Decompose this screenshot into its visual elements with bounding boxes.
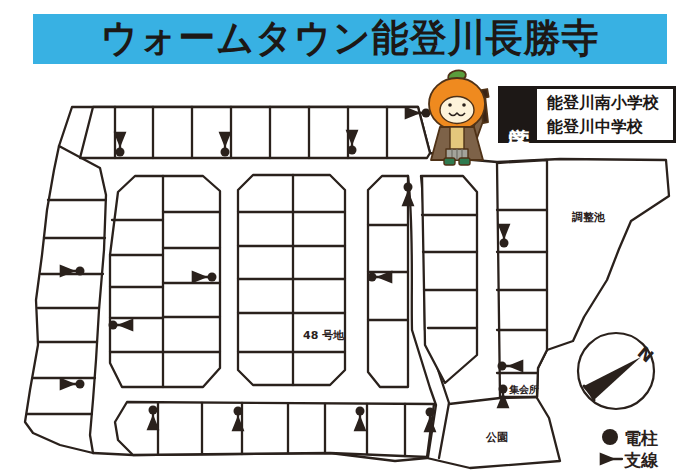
school-district-badge: 学区 [501,89,537,140]
lot-block-c-right [422,176,477,383]
school-district-label: 学区 [505,112,533,118]
elementary-school-name: 能登川南小学校 [547,91,673,115]
pole-legend-label: 電柱 [624,428,658,448]
mascot [429,69,489,165]
top-lot-strip [80,107,430,158]
compass: N [578,333,657,409]
utility-pole-icon [62,380,85,389]
bottom-lot-strip [115,402,434,457]
park-label: 公園 [485,431,508,444]
lot-block-b [238,175,345,385]
mascot-boot-icon [459,158,470,165]
pole-legend-icon [602,429,618,445]
mascot-boot-icon [444,158,455,165]
map-legend: 電柱 支線 [602,428,659,470]
right-lot-strip [497,160,547,397]
mascot-shirt [450,127,464,150]
wire-legend-label: 支線 [623,450,659,470]
lot-block-c-left [368,176,408,387]
park-boundary [449,397,537,404]
pond-label: 調整池 [571,210,605,224]
mascot-face [440,97,474,124]
compass-needle-icon [584,357,641,400]
school-district-box: 学区 能登川南小学校 能登川中学校 [498,86,676,143]
site-map: 調整池 48 号地 集会所 公園 N 電柱 支線 [0,0,700,471]
lot-block-a [110,176,220,387]
left-lot-strip [27,146,106,453]
lot-48-label: 48 号地 [303,329,345,342]
meeting-hall-label: 集会所 [509,384,539,395]
junior-high-school-name: 能登川中学校 [547,115,673,139]
